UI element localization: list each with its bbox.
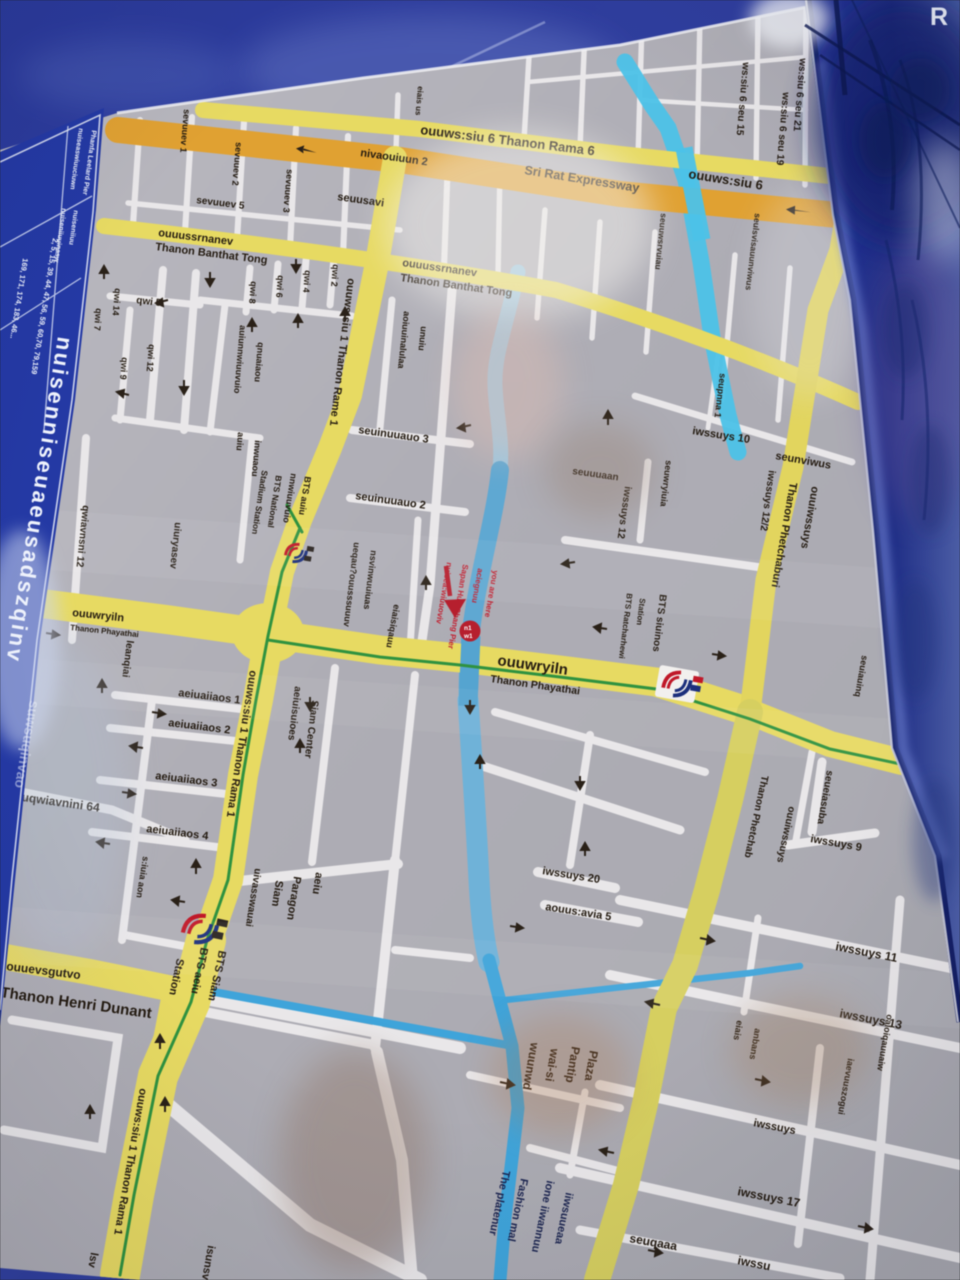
svg-text:qwi 7: qwi 7: [92, 308, 104, 331]
svg-text:auiu: auiu: [234, 432, 246, 451]
svg-text:w1: w1: [463, 633, 473, 640]
svg-text:R: R: [930, 3, 948, 31]
svg-text:qwi 6: qwi 6: [274, 275, 286, 298]
svg-text:n1: n1: [464, 625, 472, 632]
svg-text:qwi 8: qwi 8: [247, 281, 259, 304]
svg-text:qwi 2: qwi 2: [329, 264, 341, 287]
svg-text:qwi 9: qwi 9: [118, 357, 130, 380]
svg-text:qwi 4: qwi 4: [301, 270, 313, 293]
